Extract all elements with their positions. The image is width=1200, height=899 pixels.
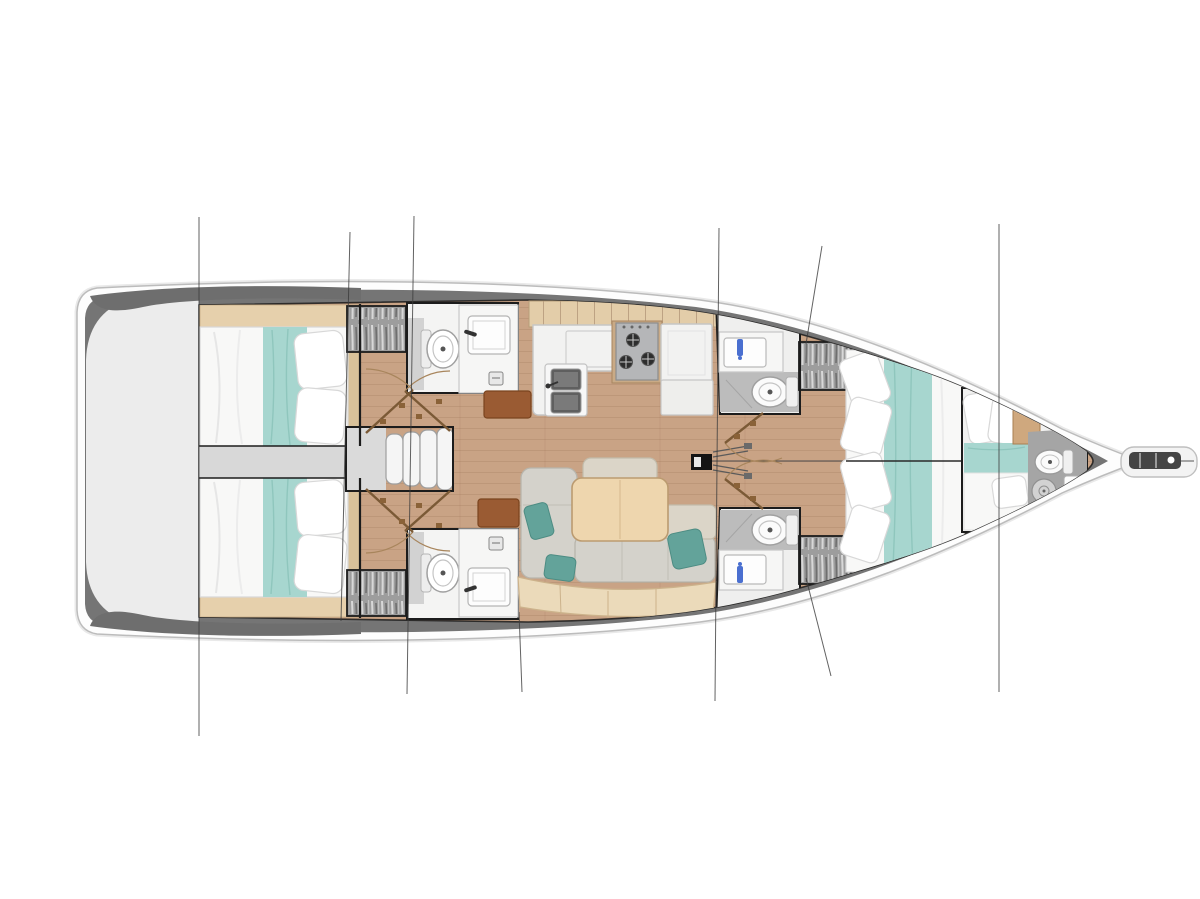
throw-pillow-teal — [543, 554, 576, 582]
sink — [724, 338, 766, 367]
faucet-blue — [737, 339, 743, 356]
bowsprit — [1121, 447, 1197, 477]
side-desk — [478, 499, 519, 527]
chart-desk — [484, 391, 531, 418]
aft-port-head — [407, 303, 518, 393]
toilet-seatback — [1063, 450, 1073, 474]
companionway-steps — [346, 427, 453, 491]
forward-cabin-bed — [837, 349, 964, 572]
aft-port-cabin-trim — [200, 305, 361, 328]
stove — [616, 323, 658, 380]
step — [437, 428, 453, 490]
faucet-blue — [737, 566, 743, 583]
aft-stbd-head — [407, 529, 518, 619]
step — [420, 430, 437, 488]
throw-pillow-teal — [667, 528, 708, 570]
hanging-locker-aft-port — [347, 306, 406, 352]
pillow — [991, 475, 1029, 509]
landing — [346, 427, 386, 491]
toilet-seatback — [786, 377, 798, 407]
toilet-seatback — [786, 515, 798, 545]
yacht-floorplan-diagram — [0, 0, 1200, 899]
galley-counter-ext — [661, 380, 713, 415]
step — [403, 432, 420, 486]
hanging-locker-aft-stbd — [347, 570, 406, 616]
aft-stbd-cabin-bed — [200, 477, 348, 597]
aft-port-cabin-bed — [200, 327, 348, 447]
sink — [724, 555, 766, 584]
step — [386, 434, 403, 484]
cockpit-area — [86, 295, 199, 627]
engine-compartment — [199, 446, 347, 478]
interior-furniture — [199, 299, 1087, 623]
galley-counter-right — [661, 324, 712, 382]
yacht-floorplan-page — [0, 0, 1200, 899]
